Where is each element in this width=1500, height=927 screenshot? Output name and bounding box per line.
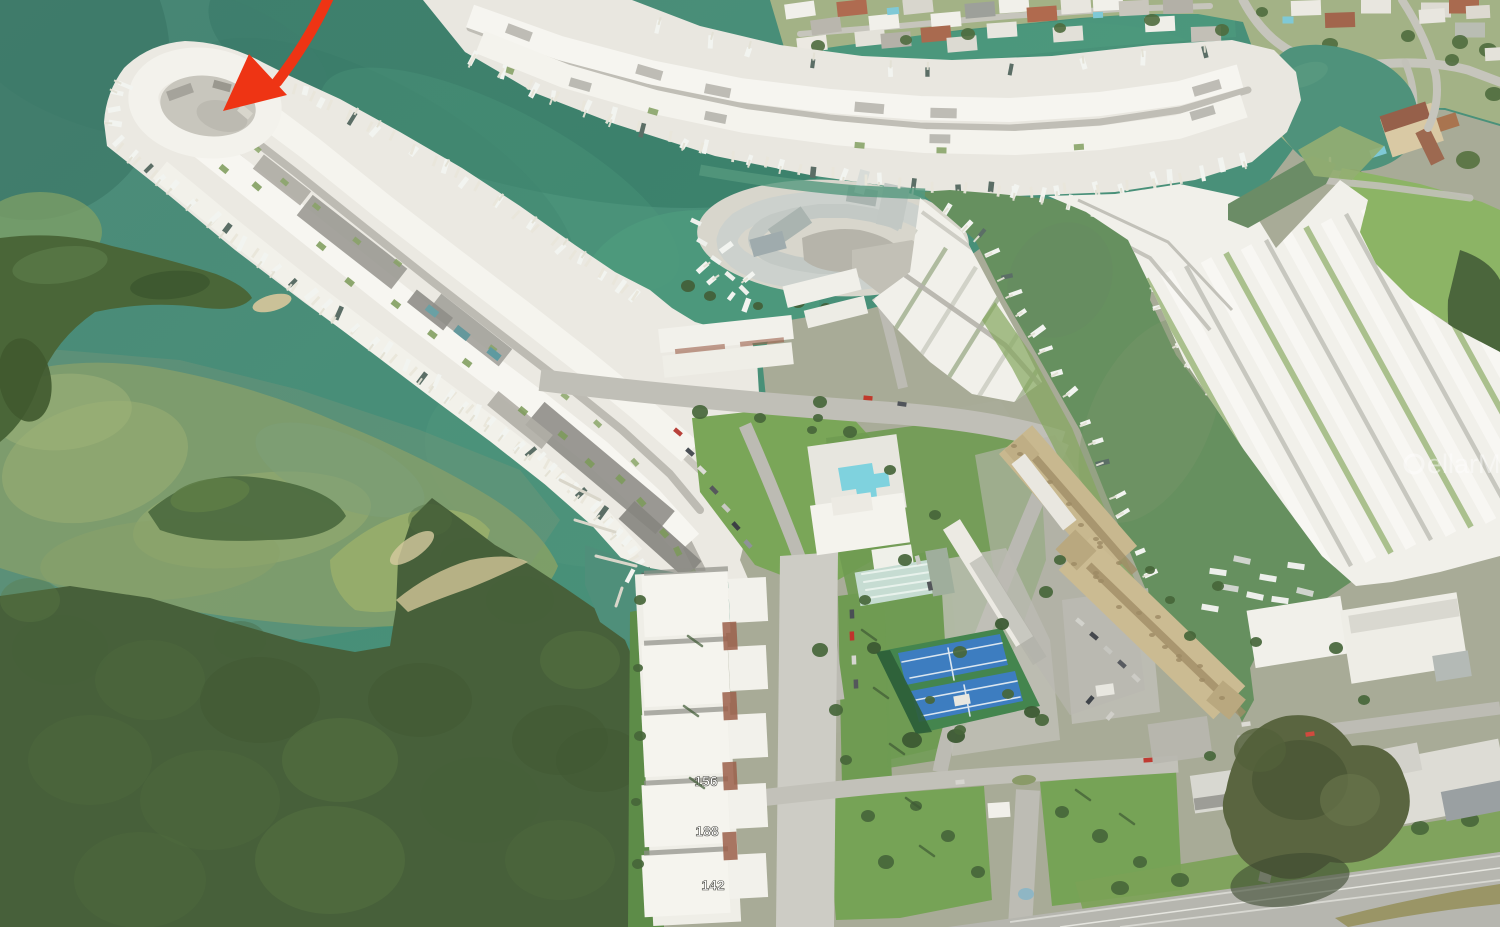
svg-text:156: 156 xyxy=(694,773,718,789)
svg-text:ellarMLS: ellarMLS xyxy=(1427,449,1500,479)
svg-text:188: 188 xyxy=(695,823,719,839)
svg-text:142: 142 xyxy=(701,877,725,893)
